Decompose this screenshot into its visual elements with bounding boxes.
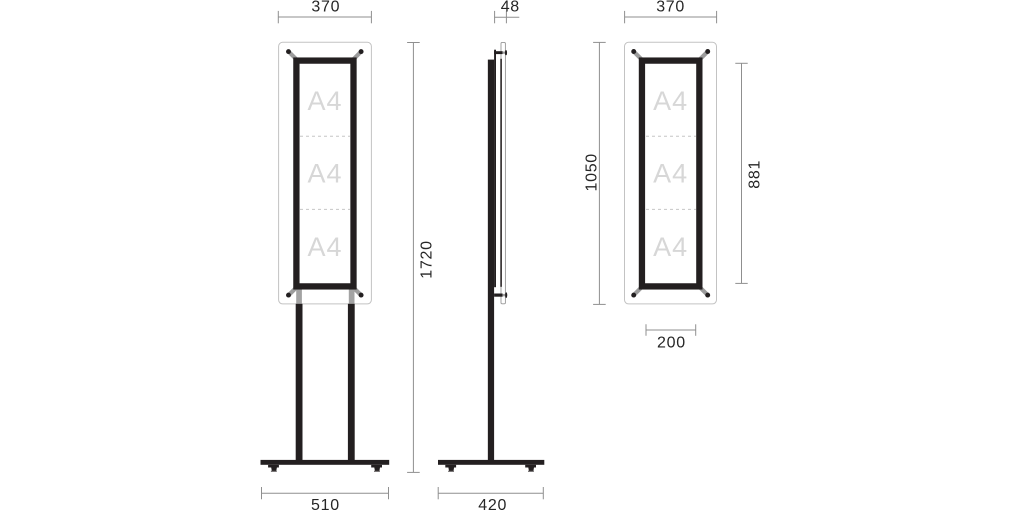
svg-text:48: 48 [501, 0, 520, 15]
svg-text:A4: A4 [653, 232, 688, 262]
svg-text:1050: 1050 [583, 153, 600, 191]
svg-text:370: 370 [311, 0, 340, 15]
svg-text:200: 200 [657, 334, 686, 351]
svg-text:A4: A4 [307, 232, 342, 262]
svg-text:881: 881 [747, 160, 764, 189]
svg-text:510: 510 [311, 497, 340, 510]
svg-text:A4: A4 [653, 159, 688, 189]
svg-text:420: 420 [478, 497, 507, 510]
svg-text:A4: A4 [307, 86, 342, 116]
svg-text:A4: A4 [653, 86, 688, 116]
svg-text:370: 370 [656, 0, 685, 15]
svg-text:A4: A4 [307, 159, 342, 189]
svg-text:1720: 1720 [418, 240, 435, 278]
